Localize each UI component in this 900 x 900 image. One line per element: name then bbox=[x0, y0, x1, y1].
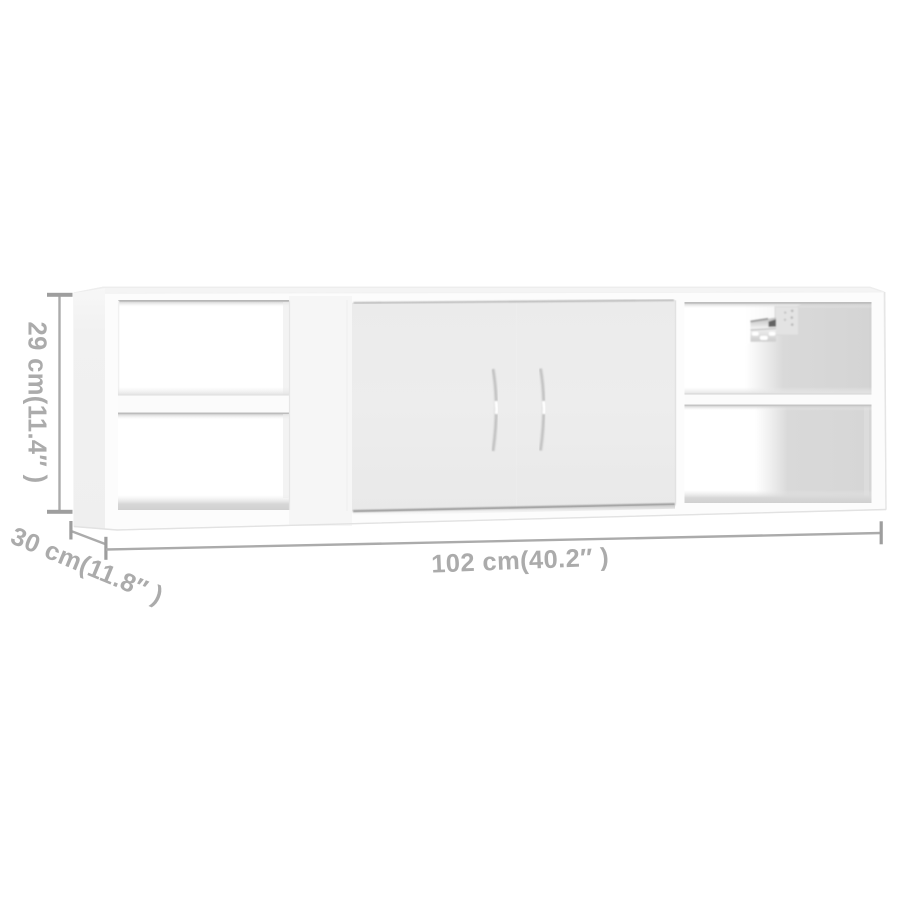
svg-text:29 cm(11.4″ ): 29 cm(11.4″ ) bbox=[23, 321, 51, 483]
